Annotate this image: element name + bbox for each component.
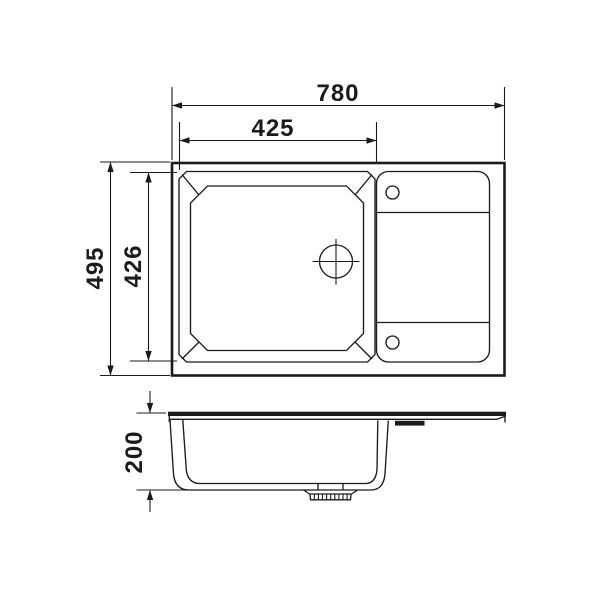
side-view: 200: [121, 391, 506, 512]
dim-bowl-depth-label: 426: [120, 244, 147, 287]
dim-bowl-width-label: 425: [251, 115, 294, 142]
drain-symbol-icon: [313, 239, 360, 285]
drainboard-outline: [377, 172, 490, 363]
drawing-canvas: 780 425 495 426: [0, 0, 600, 600]
dimension-bowl-depth: 426: [120, 173, 177, 362]
tap-hole-bottom-icon: [386, 336, 399, 349]
sink-technical-drawing: 780 425 495 426: [0, 0, 600, 600]
bowl-bevel-corner-lines: [182, 175, 372, 360]
dim-overall-depth-label: 495: [82, 246, 109, 289]
dim-overall-width-label: 780: [316, 80, 359, 107]
rim-step-section: [395, 421, 425, 426]
dimension-bowl-height: 200: [121, 391, 190, 512]
bowl-rim-outline: [179, 172, 375, 363]
bowl-inner-outline: [191, 186, 364, 351]
deck-section-bar: [168, 412, 506, 416]
drain-fitting-ribs: [314, 494, 347, 500]
sink-outer-edge: [172, 163, 505, 376]
tap-hole-top-icon: [386, 186, 399, 199]
bowl-inner-wall: [183, 420, 378, 484]
bowl-outer-shell: [170, 420, 388, 490]
top-view: 780 425 495 426: [82, 80, 505, 376]
dimension-overall-width: 780: [172, 80, 505, 160]
drain-fitting-icon: [304, 490, 358, 500]
dim-bowl-height-label: 200: [121, 430, 148, 473]
